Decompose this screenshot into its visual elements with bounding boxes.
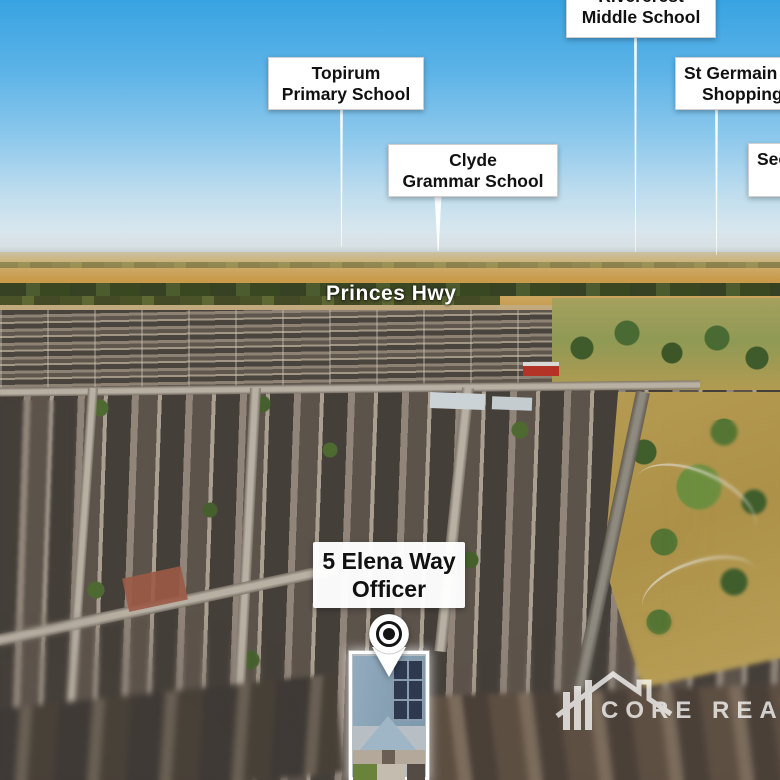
light-roof-building (492, 396, 532, 410)
front-lawn (353, 764, 377, 780)
poi-label-line: Grammar School (389, 171, 557, 192)
poi-label-rivercrest-middle-school: Rivercrest Middle School (566, 0, 716, 38)
poi-label-secondary: Sec (748, 143, 780, 197)
poi-label-line: St Germain (676, 63, 780, 84)
poi-label-topirum-primary-school: Topirum Primary School (268, 57, 424, 110)
map-pin-icon (363, 610, 415, 680)
poi-label-st-germain-shopping: St Germain Shopping (675, 57, 780, 110)
bins (407, 764, 425, 780)
agency-watermark: CORE REAL (553, 662, 780, 752)
tilt-shift-blur (662, 420, 780, 630)
poi-label-line: Sec (757, 149, 780, 170)
tilt-shift-blur (0, 400, 88, 630)
poi-label-line: Primary School (269, 84, 423, 105)
poi-label-clyde-grammar-school: Clyde Grammar School (388, 144, 558, 197)
address-line: 5 Elena Way (313, 547, 465, 575)
watermark-text: CORE REAL (601, 697, 780, 724)
shop-building (523, 362, 559, 376)
distant-treeline (0, 262, 780, 268)
poi-label-line: Topirum (269, 63, 423, 84)
sky (0, 0, 780, 254)
address-line: Officer (313, 575, 465, 603)
driveway (377, 764, 405, 780)
tilt-shift-blur (0, 612, 345, 780)
poi-label-line: Clyde (389, 150, 557, 171)
light-roof-building (430, 392, 486, 410)
poi-label-line: Shopping (676, 84, 780, 105)
property-address-label: 5 Elena Way Officer (313, 542, 465, 608)
aerial-property-photo: Princes Hwy Rivercrest Middle School Top… (0, 0, 780, 780)
distant-suburb-houses (0, 310, 568, 394)
poi-label-line: Middle School (567, 7, 715, 28)
property-facade (353, 750, 425, 764)
poi-label-line: Rivercrest (567, 0, 715, 7)
road-label-princes-hwy: Princes Hwy (326, 282, 456, 306)
green-belt-trees (552, 298, 780, 394)
